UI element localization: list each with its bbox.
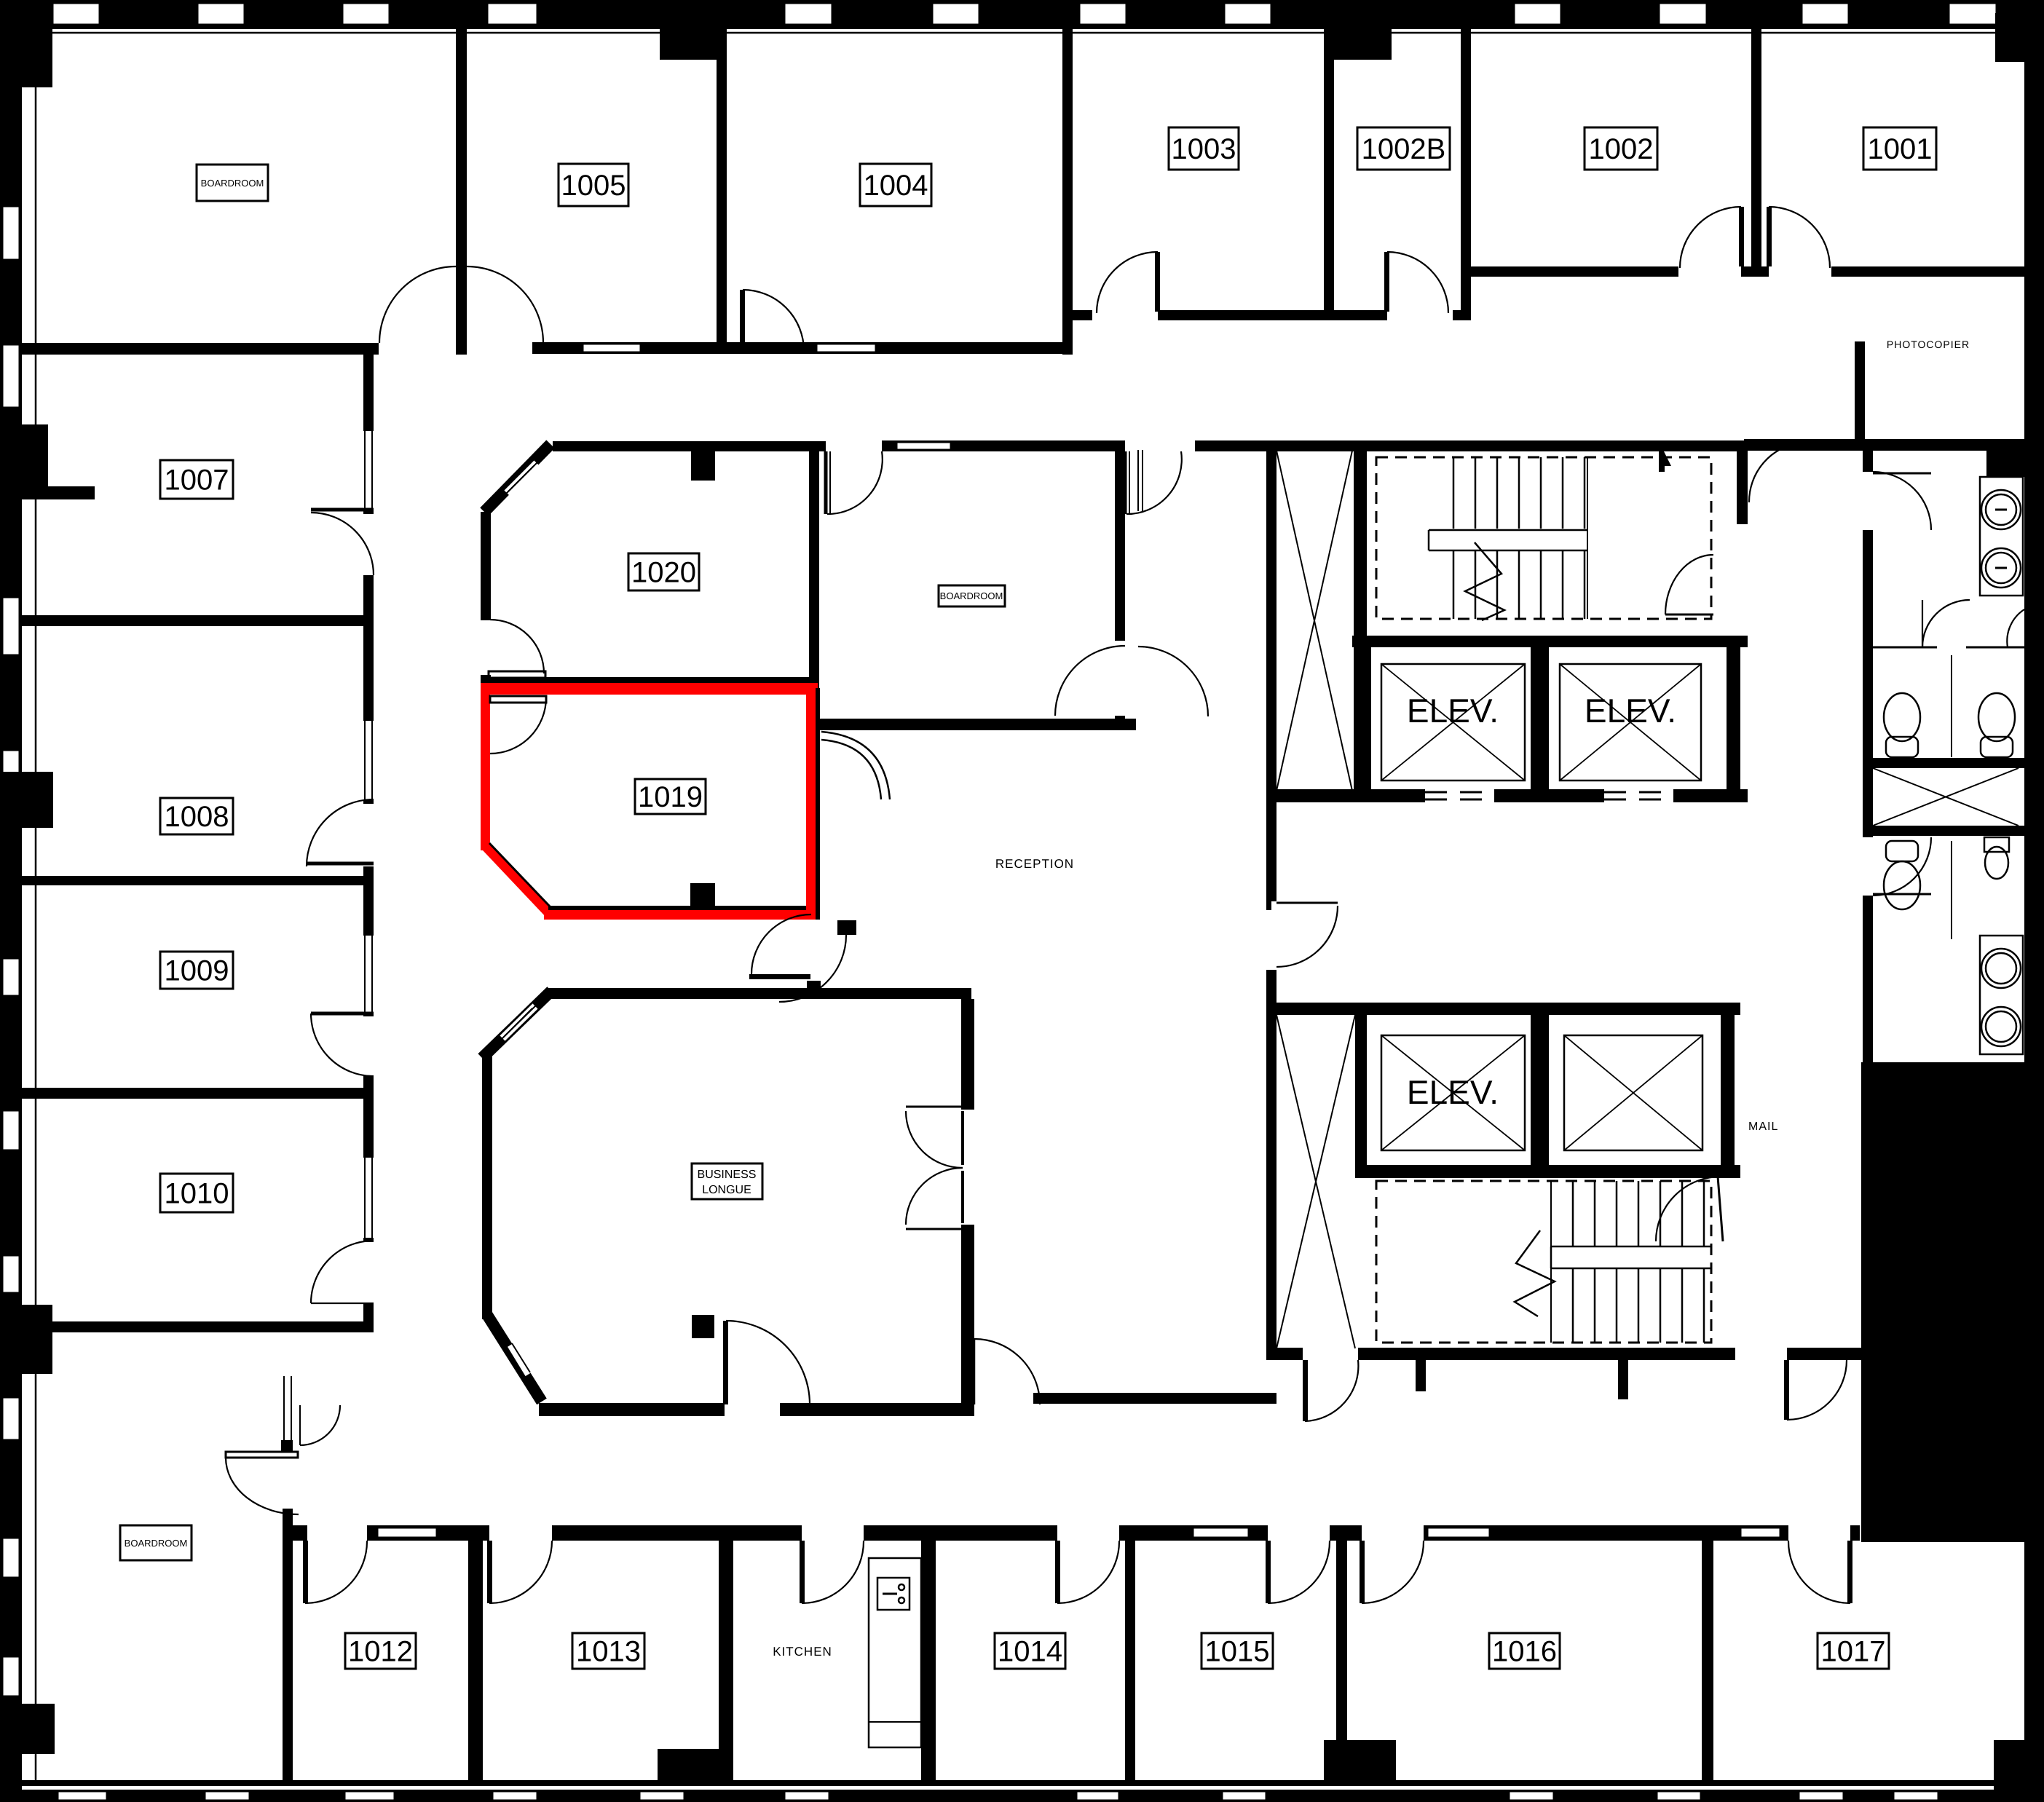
svg-text:BOARDROOM: BOARDROOM xyxy=(940,590,1003,601)
svg-text:1019: 1019 xyxy=(638,781,703,813)
svg-text:MAIL: MAIL xyxy=(1748,1121,1778,1133)
svg-text:ELEV.: ELEV. xyxy=(1407,692,1499,730)
svg-text:1002: 1002 xyxy=(1589,133,1654,165)
svg-text:BOARDROOM: BOARDROOM xyxy=(201,178,264,189)
svg-text:LONGUE: LONGUE xyxy=(702,1184,751,1196)
svg-text:1004: 1004 xyxy=(864,170,928,202)
svg-text:1009: 1009 xyxy=(165,955,229,987)
svg-text:KITCHEN: KITCHEN xyxy=(773,1645,832,1659)
svg-text:PHOTOCOPIER: PHOTOCOPIER xyxy=(1887,339,1970,350)
svg-text:1001: 1001 xyxy=(1868,133,1933,165)
svg-text:1007: 1007 xyxy=(165,465,229,497)
svg-text:1014: 1014 xyxy=(998,1636,1062,1668)
svg-text:BOARDROOM: BOARDROOM xyxy=(125,1538,188,1549)
svg-text:1017: 1017 xyxy=(1821,1636,1886,1668)
svg-text:1016: 1016 xyxy=(1492,1636,1557,1668)
svg-text:1008: 1008 xyxy=(165,801,229,833)
svg-text:1002B: 1002B xyxy=(1362,133,1446,165)
svg-text:ELEV.: ELEV. xyxy=(1585,692,1676,730)
svg-text:ELEV.: ELEV. xyxy=(1407,1073,1499,1111)
svg-text:1015: 1015 xyxy=(1205,1636,1270,1668)
svg-text:RECEPTION: RECEPTION xyxy=(995,857,1074,871)
svg-text:1020: 1020 xyxy=(631,557,696,589)
svg-text:1012: 1012 xyxy=(348,1636,413,1668)
svg-text:1003: 1003 xyxy=(1172,133,1236,165)
svg-text:1013: 1013 xyxy=(576,1636,641,1668)
svg-text:1010: 1010 xyxy=(165,1178,229,1210)
svg-text:BUSINESS: BUSINESS xyxy=(698,1169,757,1181)
svg-text:1005: 1005 xyxy=(561,170,626,202)
